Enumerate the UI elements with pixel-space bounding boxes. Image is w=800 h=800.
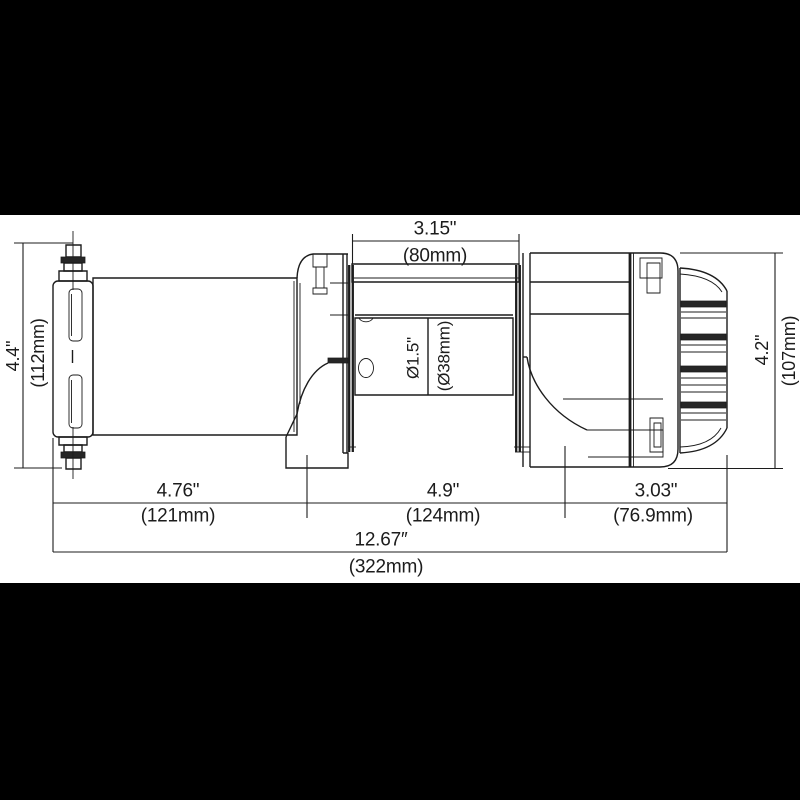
dim-left-mm: (112mm) — [28, 318, 48, 387]
drum-diameter-mm: (Ø38mm) — [435, 321, 454, 391]
cap-rib — [681, 334, 726, 340]
clamp-boss-bottom-core — [654, 423, 661, 447]
drum-diameter-inches: Ø1.5" — [404, 337, 423, 379]
motor-body — [93, 278, 297, 435]
bolt-washer — [61, 257, 85, 263]
cap-rib — [681, 402, 726, 408]
cap-rib — [681, 301, 726, 307]
cap-bottom-arc-inner — [680, 428, 721, 447]
tie-bar — [352, 264, 519, 282]
motor-end-cap — [53, 281, 93, 437]
end-cap-slot-upper — [69, 289, 82, 341]
cap-rib — [681, 366, 726, 372]
winch-drum: Ø1.5" (Ø38mm) — [348, 265, 530, 452]
end-cap-slot-lower — [69, 375, 82, 428]
motor-outline — [93, 278, 297, 435]
housing-outline — [530, 253, 678, 467]
bracket-step-block — [313, 288, 327, 294]
winch-dimension-drawing: 4.4" (112mm) — [0, 0, 800, 800]
bracket-step-block — [313, 254, 327, 267]
clamp-boss-top — [640, 258, 662, 278]
dim-top-mm: (80mm) — [403, 246, 467, 267]
bolt-nut — [66, 245, 81, 257]
clamp-boss-bottom — [630, 430, 663, 457]
terminal-bolt-bottom — [59, 427, 87, 479]
dim-overall-inches: 12.67″ — [354, 530, 408, 551]
dimension-bottom-rows: 4.76" (121mm) 4.9" (124mm) 3.03" (76.9mm… — [53, 438, 727, 578]
dim-left-inches: 4.4" — [3, 341, 23, 372]
dim-motor-mm: (121mm) — [141, 506, 216, 527]
right-bracket-gusset-curve — [527, 357, 587, 430]
dim-right-mm: (107mm) — [779, 316, 799, 387]
bracket-gusset-curve — [286, 363, 328, 437]
dim-motor-inches: 4.76" — [157, 481, 200, 502]
cap-bottom-arc — [680, 428, 727, 453]
dimension-top-width: 3.15" (80mm) — [353, 219, 520, 267]
cap-top-arc-inner — [680, 274, 722, 292]
bracket-step-block — [316, 267, 324, 288]
bracket-dark-band — [328, 358, 348, 363]
bolt-nut — [66, 458, 81, 469]
drum-hole — [359, 359, 374, 378]
dim-right-inches: 4.2" — [752, 335, 772, 366]
gearbox-housing — [523, 253, 678, 467]
winch-diagram-svg: 4.4" (112mm) — [0, 0, 800, 800]
bracket-corner-curve — [297, 254, 313, 278]
dimension-right-height: 4.2" (107mm) — [668, 253, 799, 469]
dimension-left-height: 4.4" (112mm) — [3, 243, 73, 468]
ribbed-clutch-cap — [680, 268, 727, 453]
left-support-bracket — [286, 254, 348, 468]
dim-overall-mm: (322mm) — [349, 557, 424, 578]
dim-drum-mm: (124mm) — [406, 506, 481, 527]
tie-bar-outline — [352, 264, 519, 282]
dim-top-inches: 3.15" — [414, 219, 457, 240]
dim-gearbox-mm: (76.9mm) — [613, 506, 693, 527]
dim-gearbox-inches: 3.03" — [635, 481, 678, 502]
bracket-foot — [286, 437, 348, 468]
cap-top-arc — [680, 268, 727, 291]
dim-drum-inches: 4.9" — [427, 481, 459, 502]
